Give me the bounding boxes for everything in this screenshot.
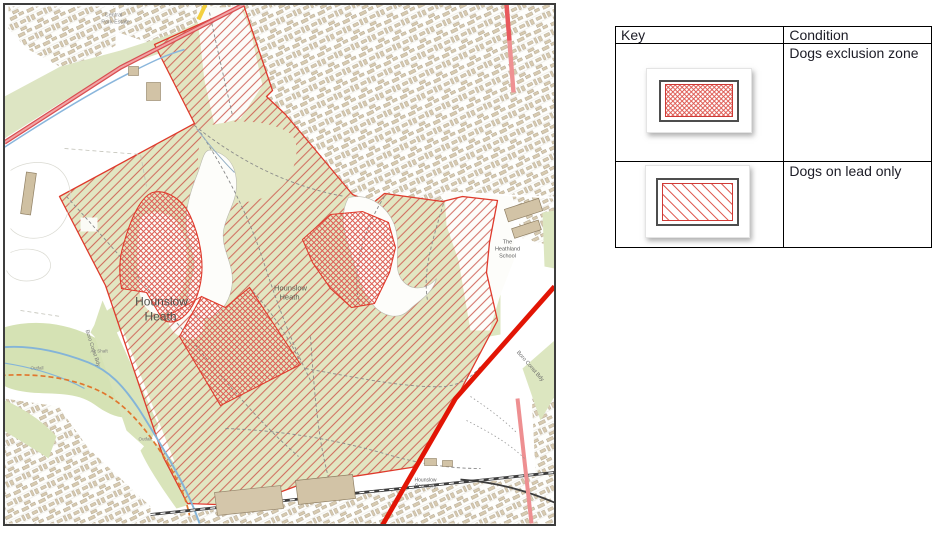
svg-text:Park Estate: Park Estate bbox=[101, 20, 129, 26]
svg-text:Hounslow: Hounslow bbox=[135, 295, 188, 309]
svg-text:Air Shaft: Air Shaft bbox=[91, 349, 109, 354]
svg-text:The: The bbox=[503, 240, 512, 246]
svg-text:Outfall: Outfall bbox=[139, 437, 152, 442]
svg-text:Heath: Heath bbox=[279, 293, 299, 302]
svg-text:Central: Central bbox=[105, 13, 123, 19]
svg-text:Heath: Heath bbox=[144, 310, 176, 324]
svg-text:Cemetery: Cemetery bbox=[415, 484, 437, 490]
svg-text:Heathland: Heathland bbox=[495, 247, 520, 253]
svg-text:School: School bbox=[499, 254, 516, 260]
svg-text:Hounslow: Hounslow bbox=[274, 284, 308, 293]
svg-text:Outfall: Outfall bbox=[31, 366, 44, 371]
